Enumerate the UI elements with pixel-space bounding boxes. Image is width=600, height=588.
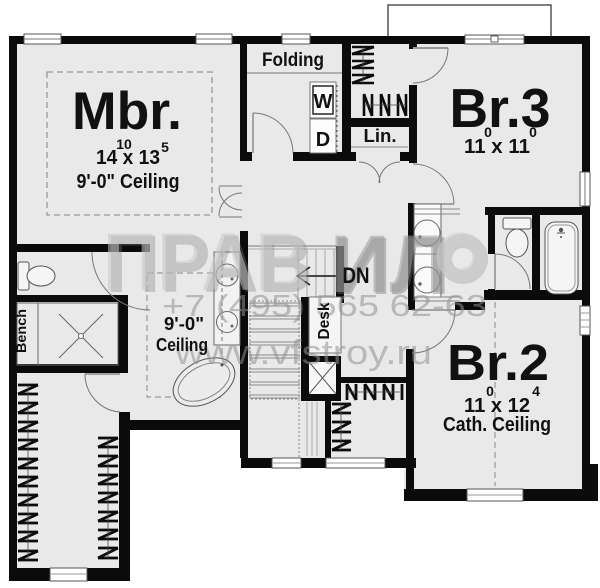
svg-text:9'-0": 9'-0" <box>164 314 204 334</box>
svg-text:10: 10 <box>116 136 132 152</box>
svg-text:Cath. Ceiling: Cath. Ceiling <box>443 414 551 436</box>
svg-text:D: D <box>316 129 330 151</box>
svg-text:Folding: Folding <box>262 50 324 71</box>
svg-text:9'-0" Ceiling: 9'-0" Ceiling <box>77 171 180 193</box>
svg-text:11 x 11: 11 x 11 <box>464 136 530 158</box>
svg-text:0: 0 <box>484 124 492 140</box>
svg-text:Desk: Desk <box>316 302 333 339</box>
svg-text:Lin.: Lin. <box>364 126 397 146</box>
svg-text:DN: DN <box>343 263 370 288</box>
svg-text:W: W <box>314 91 333 113</box>
svg-text:0: 0 <box>486 383 494 399</box>
svg-text:0: 0 <box>529 124 537 140</box>
svg-text:Ceiling: Ceiling <box>156 335 208 355</box>
svg-text:www.vfstroy.ru: www.vfstroy.ru <box>174 334 432 372</box>
svg-text:Bench: Bench <box>13 309 29 353</box>
svg-text:5: 5 <box>161 139 169 155</box>
svg-text:4: 4 <box>532 383 540 399</box>
svg-text:Mbr.: Mbr. <box>72 82 182 141</box>
